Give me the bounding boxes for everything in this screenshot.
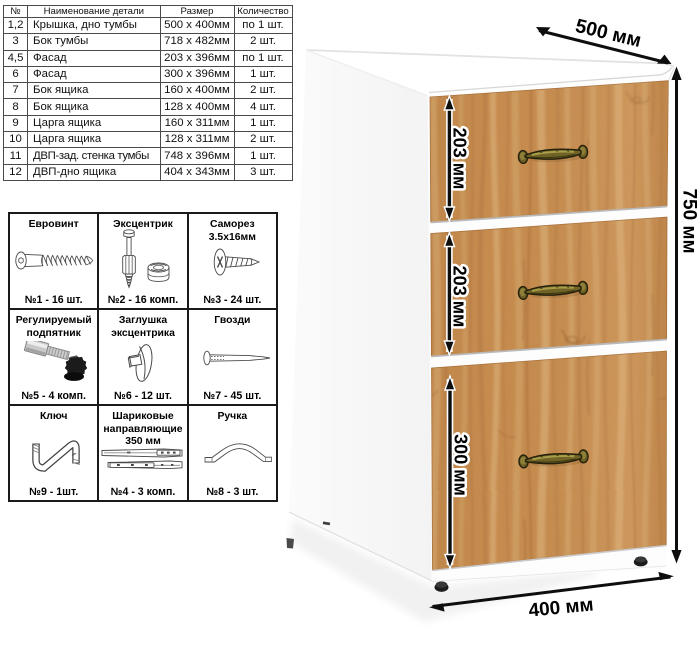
svg-text:750 мм: 750 мм bbox=[679, 188, 700, 253]
svg-text:203 мм: 203 мм bbox=[450, 128, 470, 190]
svg-text:400 мм: 400 мм bbox=[528, 594, 595, 621]
svg-text:203 мм: 203 мм bbox=[450, 266, 470, 328]
svg-text:300 мм: 300 мм bbox=[450, 434, 470, 496]
